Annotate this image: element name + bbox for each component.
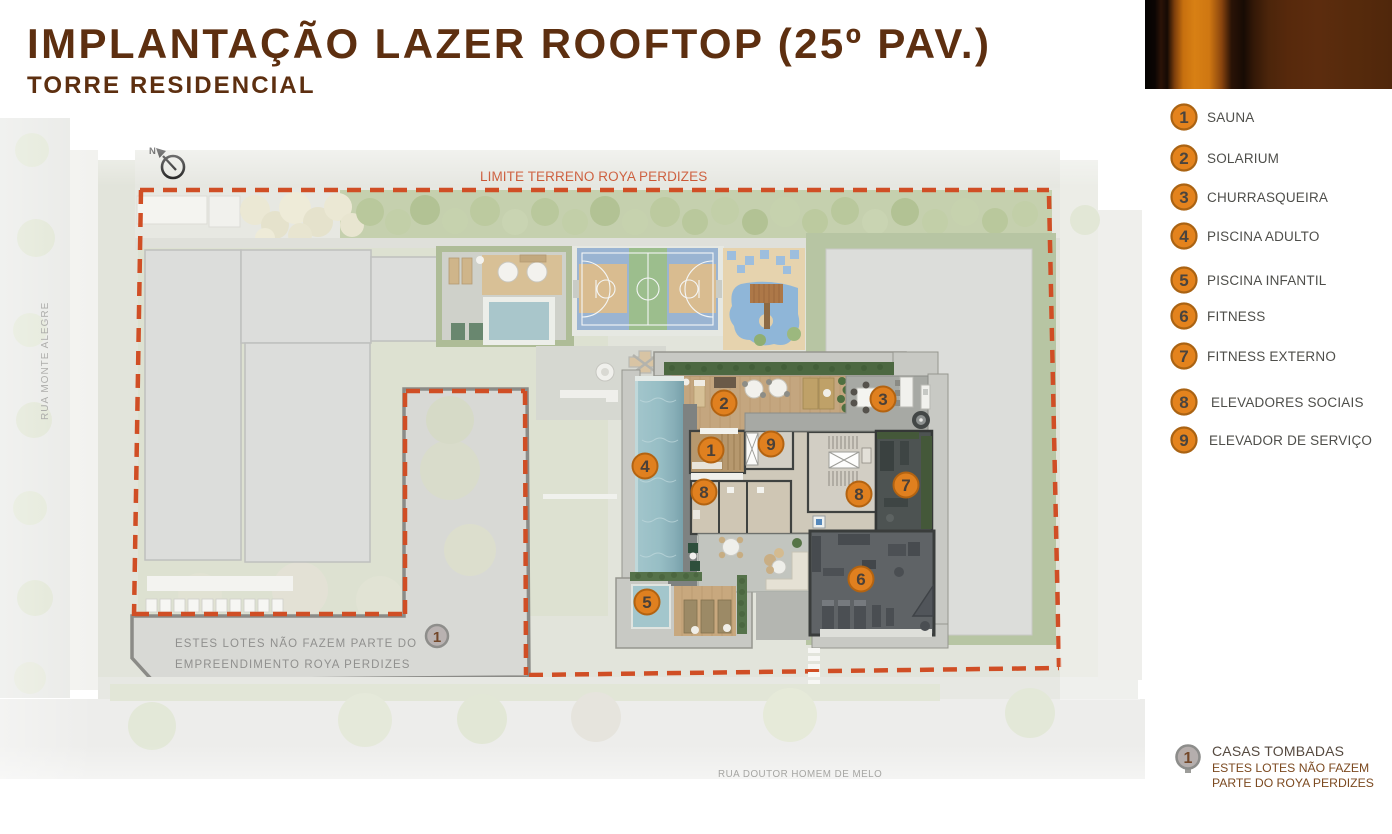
svg-text:ESTES LOTES NÃO FAZEM: ESTES LOTES NÃO FAZEM (1212, 761, 1369, 775)
svg-text:3: 3 (1179, 188, 1188, 207)
svg-text:FITNESS EXTERNO: FITNESS EXTERNO (1207, 349, 1336, 364)
svg-text:9: 9 (766, 435, 775, 454)
svg-text:8: 8 (699, 483, 708, 502)
svg-text:PISCINA ADULTO: PISCINA ADULTO (1207, 229, 1320, 244)
svg-text:ELEVADOR DE SERVIÇO: ELEVADOR DE SERVIÇO (1209, 433, 1372, 448)
svg-text:RUA DOUTOR HOMEM DE MELO: RUA DOUTOR HOMEM DE MELO (718, 769, 882, 780)
svg-text:9: 9 (1179, 431, 1188, 450)
svg-text:8: 8 (1179, 393, 1188, 412)
svg-text:5: 5 (642, 593, 651, 612)
svg-text:TORRE RESIDENCIAL: TORRE RESIDENCIAL (27, 72, 316, 99)
svg-text:3: 3 (878, 390, 887, 409)
svg-text:1: 1 (706, 441, 715, 460)
svg-text:PISCINA INFANTIL: PISCINA INFANTIL (1207, 273, 1327, 288)
svg-text:4: 4 (1179, 227, 1189, 246)
svg-text:1: 1 (1184, 750, 1193, 767)
svg-text:7: 7 (1179, 347, 1188, 366)
svg-text:CASAS TOMBADAS: CASAS TOMBADAS (1212, 743, 1344, 759)
svg-text:ELEVADORES SOCIAIS: ELEVADORES SOCIAIS (1211, 395, 1364, 410)
svg-text:2: 2 (719, 394, 728, 413)
svg-text:SAUNA: SAUNA (1207, 110, 1255, 125)
svg-text:5: 5 (1179, 271, 1188, 290)
svg-text:IMPLANTAÇÃO LAZER ROOFTOP (25º: IMPLANTAÇÃO LAZER ROOFTOP (25º PAV.) (27, 20, 991, 67)
svg-text:7: 7 (901, 476, 910, 495)
svg-text:SOLARIUM: SOLARIUM (1207, 151, 1279, 166)
svg-text:1: 1 (1179, 108, 1188, 127)
svg-text:8: 8 (854, 485, 863, 504)
svg-text:CHURRASQUEIRA: CHURRASQUEIRA (1207, 190, 1328, 205)
svg-text:4: 4 (640, 457, 650, 476)
svg-text:1: 1 (433, 629, 441, 646)
svg-text:ESTES LOTES NÃO FAZEM PARTE DO: ESTES LOTES NÃO FAZEM PARTE DO (175, 637, 417, 650)
svg-text:EMPREENDIMENTO ROYA PERDIZES: EMPREENDIMENTO ROYA PERDIZES (175, 659, 411, 671)
svg-text:6: 6 (856, 570, 865, 589)
svg-text:PARTE DO ROYA PERDIZES: PARTE DO ROYA PERDIZES (1212, 776, 1374, 790)
svg-text:FITNESS: FITNESS (1207, 309, 1265, 324)
svg-text:2: 2 (1179, 149, 1188, 168)
svg-text:6: 6 (1179, 307, 1188, 326)
